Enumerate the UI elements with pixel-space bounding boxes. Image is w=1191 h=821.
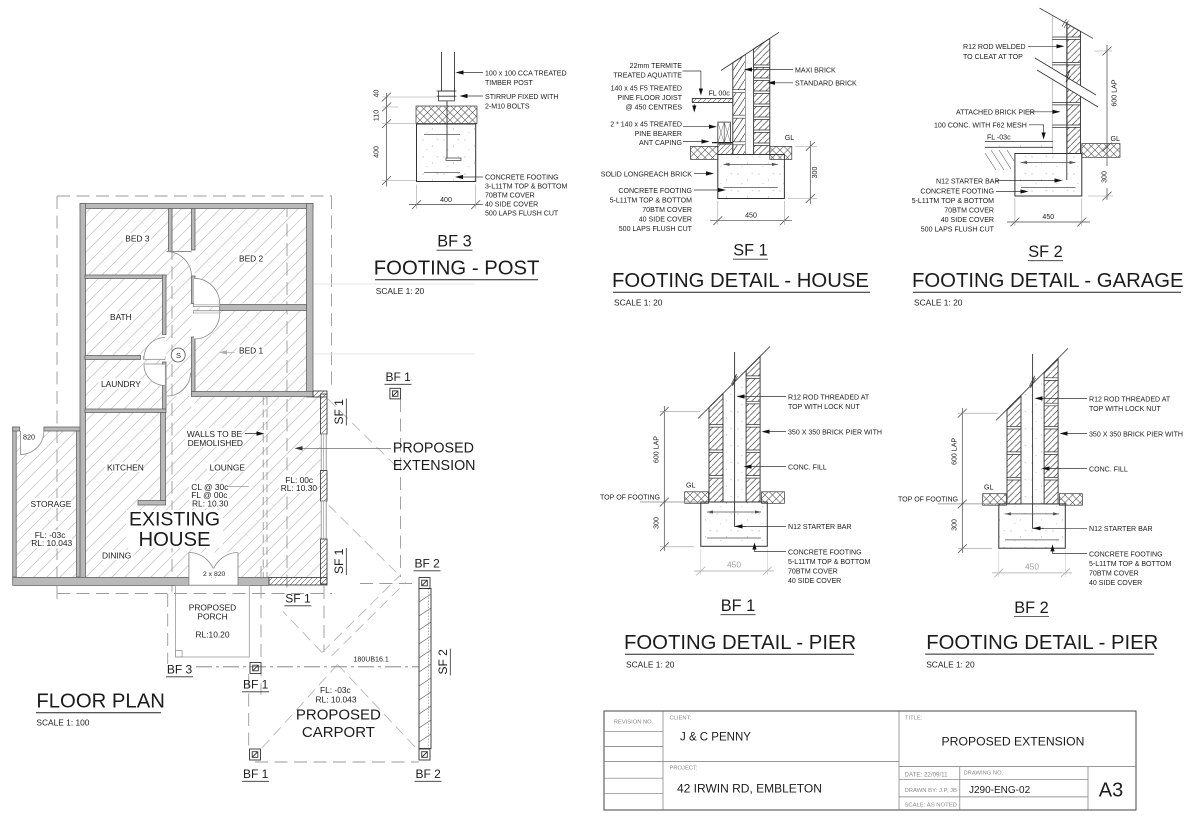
svg-text:5-L11TM TOP & BOTTOM: 5-L11TM TOP & BOTTOM [1089,561,1171,568]
svg-text:ANT CAPING: ANT CAPING [639,140,682,147]
svg-text:SCALE 1: 20: SCALE 1: 20 [614,298,663,308]
svg-text:DRAWN BY: J.P, JB: DRAWN BY: J.P, JB [905,788,957,794]
svg-text:PINE FLOOR JOIST: PINE FLOOR JOIST [617,95,682,102]
svg-text:BED 3: BED 3 [125,234,150,244]
svg-text:SF 1: SF 1 [285,592,311,606]
svg-text:500 LAPS FLUSH CUT: 500 LAPS FLUSH CUT [921,227,995,234]
svg-text:FOOTING DETAIL - GARAGE: FOOTING DETAIL - GARAGE [912,270,1184,292]
svg-text:70BTM COVER: 70BTM COVER [642,207,692,214]
svg-text:TOP WITH LOCK NUT: TOP WITH LOCK NUT [788,404,860,411]
svg-text:CLIENT:: CLIENT: [670,716,692,722]
svg-text:CONC. FILL: CONC. FILL [788,465,827,472]
svg-text:PROPOSED EXTENSION: PROPOSED EXTENSION [942,735,1085,749]
svg-text:3-L11TM TOP & BOTTOM: 3-L11TM TOP & BOTTOM [485,184,567,191]
svg-text:LOUNGE: LOUNGE [210,462,246,472]
svg-text:5-L11TM TOP & BOTTOM: 5-L11TM TOP & BOTTOM [610,198,692,205]
svg-text:820: 820 [23,433,35,442]
svg-text:TITLE:: TITLE: [905,716,923,722]
svg-text:RL: 10.30: RL: 10.30 [192,498,229,508]
svg-text:SF 1: SF 1 [332,548,346,574]
svg-text:PORCH: PORCH [197,612,227,622]
svg-text:SF 1: SF 1 [332,399,346,425]
svg-text:ATTACHED BRICK PIER: ATTACHED BRICK PIER [956,110,1035,117]
svg-text:RL:10.20: RL:10.20 [196,630,230,640]
svg-text:PINE BEARER: PINE BEARER [635,131,682,138]
svg-text:140 x 45 F5 TREATED: 140 x 45 F5 TREATED [611,86,682,93]
svg-text:450: 450 [727,560,741,570]
svg-text:FL -03c: FL -03c [987,134,1011,141]
svg-text:300: 300 [1101,171,1108,183]
svg-text:42 IRWIN RD, EMBLETON: 42 IRWIN RD, EMBLETON [677,782,822,796]
svg-text:TOP OF FOOTING: TOP OF FOOTING [898,496,958,503]
svg-text:MAXI BRICK: MAXI BRICK [795,68,836,75]
svg-text:BF 3: BF 3 [167,663,193,677]
svg-text:BF 1: BF 1 [721,597,755,615]
svg-text:SF 1: SF 1 [733,242,767,260]
svg-text:PROJECT:: PROJECT: [670,766,698,772]
svg-text:R12 ROD WELDED: R12 ROD WELDED [963,44,1026,51]
svg-text:SCALE: AS NOTED: SCALE: AS NOTED [905,803,957,809]
svg-text:CONCRETE FOOTING: CONCRETE FOOTING [485,175,559,182]
svg-text:SOLID LONGREACH BRICK: SOLID LONGREACH BRICK [601,172,693,179]
svg-text:BF 1: BF 1 [386,370,412,384]
svg-text:SCALE 1: 20: SCALE 1: 20 [926,659,975,669]
svg-text:BF 2: BF 2 [416,767,442,781]
svg-text:PROPOSED: PROPOSED [296,707,381,724]
svg-text:@ 450 CENTRES: @ 450 CENTRES [626,105,683,112]
svg-text:5-L11TM TOP & BOTTOM: 5-L11TM TOP & BOTTOM [912,198,994,205]
svg-text:CONCRETE FOOTING: CONCRETE FOOTING [788,550,862,557]
svg-text:70BTM COVER: 70BTM COVER [944,208,994,215]
svg-text:450: 450 [1025,561,1039,571]
svg-text:HOUSE: HOUSE [138,529,210,551]
svg-text:J & C PENNY: J & C PENNY [680,732,751,744]
svg-text:100 x 100 CCA TREATED: 100 x 100 CCA TREATED [485,71,567,78]
svg-text:2 x 820: 2 x 820 [203,571,226,578]
svg-text:RL: 10.043: RL: 10.043 [316,695,357,705]
svg-text:RL: 10.30: RL: 10.30 [281,483,318,493]
svg-text:2-M10 BOLTS: 2-M10 BOLTS [485,104,530,111]
svg-text:FOOTING DETAIL - PIER: FOOTING DETAIL - PIER [624,632,856,654]
svg-text:CONCRETE FOOTING: CONCRETE FOOTING [1089,551,1163,558]
svg-text:LAUNDRY: LAUNDRY [101,379,141,389]
svg-text:22mm TERMITE: 22mm TERMITE [630,63,683,70]
svg-text:BF 1: BF 1 [243,767,269,781]
svg-text:GL: GL [686,483,695,490]
svg-text:TO CLEAT AT TOP: TO CLEAT AT TOP [963,54,1023,61]
svg-text:N12 STARTER BAR: N12 STARTER BAR [788,524,852,531]
svg-text:SCALE 1: 20: SCALE 1: 20 [914,298,963,308]
svg-text:600 LAP: 600 LAP [1112,79,1119,106]
svg-text:TOP WITH LOCK NUT: TOP WITH LOCK NUT [1089,406,1161,413]
svg-text:CONC. FILL: CONC. FILL [1089,466,1128,473]
svg-text:70BTM COVER: 70BTM COVER [788,569,838,576]
svg-text:CONCRETE FOOTING: CONCRETE FOOTING [618,188,692,195]
svg-text:DATE: 22/09/11: DATE: 22/09/11 [905,772,949,779]
svg-text:SCALE 1: 100: SCALE 1: 100 [36,718,89,728]
svg-text:N12 STARTER BAR: N12 STARTER BAR [1089,526,1153,533]
svg-text:70BTM COVER: 70BTM COVER [1089,570,1139,577]
svg-text:300: 300 [654,517,661,529]
svg-text:300: 300 [952,519,959,531]
svg-text:STANDARD BRICK: STANDARD BRICK [795,81,857,88]
svg-text:BF 2: BF 2 [415,557,441,571]
svg-text:SF 2: SF 2 [1028,243,1062,261]
svg-text:40 SIDE COVER: 40 SIDE COVER [639,217,692,224]
svg-text:N12 STARTER BAR: N12 STARTER BAR [936,179,1000,186]
svg-text:350 X 350 BRICK PIER WITH: 350 X 350 BRICK PIER WITH [1089,431,1183,438]
svg-text:FOOTING DETAIL - HOUSE: FOOTING DETAIL - HOUSE [612,270,869,292]
svg-text:EXISTING: EXISTING [129,509,220,531]
svg-text:2 * 140 x 45 TREATED: 2 * 140 x 45 TREATED [610,122,682,129]
svg-text:BF 1: BF 1 [243,678,269,692]
svg-text:110: 110 [374,110,381,121]
svg-text:GL: GL [785,135,794,142]
svg-text:600 LAP: 600 LAP [654,436,661,463]
svg-text:RL: 10.043: RL: 10.043 [31,538,72,548]
svg-text:TIMBER POST: TIMBER POST [485,80,533,87]
svg-text:SF 2: SF 2 [436,649,450,675]
svg-text:BED 2: BED 2 [239,254,264,264]
svg-text:KITCHEN: KITCHEN [107,463,144,473]
svg-text:STIRRUP FIXED WITH: STIRRUP FIXED WITH [485,94,558,101]
svg-text:EXTENSION: EXTENSION [393,458,476,474]
svg-text:5-L11TM TOP & BOTTOM: 5-L11TM TOP & BOTTOM [788,559,870,566]
svg-text:TREATED AQUATITE: TREATED AQUATITE [613,73,682,80]
svg-text:350 X 350 BRICK PIER WITH: 350 X 350 BRICK PIER WITH [788,430,882,437]
svg-text:BED 1: BED 1 [239,346,264,356]
svg-text:400: 400 [374,146,381,158]
svg-text:FL 00c: FL 00c [709,91,731,98]
svg-text:BATH: BATH [110,312,132,322]
svg-text:GL: GL [984,484,993,491]
svg-text:GL: GL [1111,136,1120,143]
svg-text:CONCRETE FOOTING: CONCRETE FOOTING [920,189,994,196]
svg-text:300: 300 [812,167,819,179]
svg-text:SCALE 1: 20: SCALE 1: 20 [376,286,425,296]
svg-text:SCALE 1: 20: SCALE 1: 20 [626,660,675,670]
svg-text:100 CONC. WITH F62 MESH: 100 CONC. WITH F62 MESH [934,123,1027,130]
svg-text:FOOTING - POST: FOOTING - POST [374,258,540,280]
svg-text:FOOTING DETAIL - PIER: FOOTING DETAIL - PIER [926,632,1158,654]
svg-text:BF 2: BF 2 [1014,599,1048,617]
svg-text:S: S [176,351,181,360]
svg-text:40: 40 [374,90,381,98]
svg-text:450: 450 [745,213,757,220]
svg-text:40 SIDE COVER: 40 SIDE COVER [941,217,994,224]
svg-text:BF 3: BF 3 [437,233,471,251]
svg-text:DINING: DINING [102,551,131,561]
svg-text:450: 450 [1042,214,1054,221]
svg-text:DRAWING NO.: DRAWING NO. [964,771,1004,777]
svg-text:40 SIDE COVER: 40 SIDE COVER [788,578,841,585]
svg-text:500 LAPS FLUSH CUT: 500 LAPS FLUSH CUT [485,211,559,218]
svg-text:FL: -03c: FL: -03c [320,685,351,695]
svg-text:FLOOR PLAN: FLOOR PLAN [36,691,164,713]
svg-text:TOP OF FOOTING: TOP OF FOOTING [600,495,660,502]
svg-text:A3: A3 [1099,780,1123,802]
svg-text:500 LAPS FLUSH CUT: 500 LAPS FLUSH CUT [619,226,693,233]
svg-text:R12 ROD THREADED AT: R12 ROD THREADED AT [788,395,870,402]
svg-text:40 SIDE COVER: 40 SIDE COVER [485,202,538,209]
svg-text:DEMOLISHED: DEMOLISHED [188,438,243,448]
svg-text:STORAGE: STORAGE [31,499,72,509]
svg-text:J290-ENG-02: J290-ENG-02 [969,785,1031,796]
svg-text:40 SIDE COVER: 40 SIDE COVER [1089,580,1142,587]
svg-text:PROPOSED: PROPOSED [393,441,474,457]
svg-text:CARPORT: CARPORT [302,724,375,741]
svg-text:70BTM COVER: 70BTM COVER [485,193,535,200]
svg-text:400: 400 [440,197,452,204]
svg-text:REVISION NO.: REVISION NO. [614,720,654,726]
svg-text:600 LAP: 600 LAP [952,438,959,465]
svg-text:180UB16.1: 180UB16.1 [354,657,389,664]
svg-text:R12 ROD THREADED AT: R12 ROD THREADED AT [1089,396,1171,403]
